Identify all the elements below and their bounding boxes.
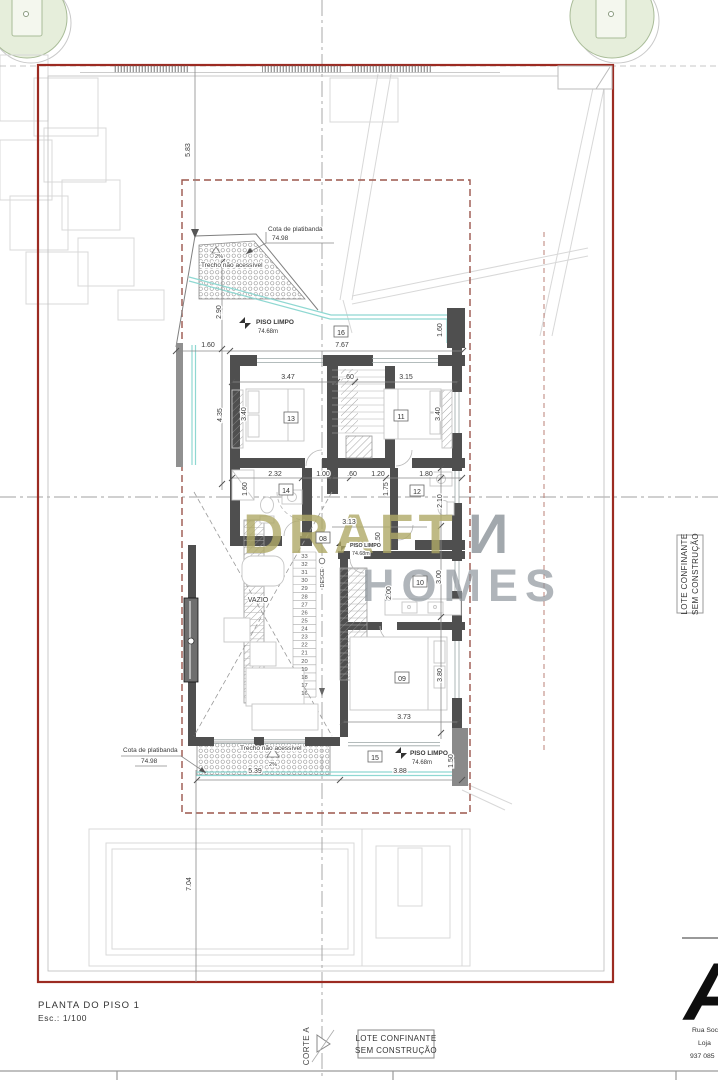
room-tag-number: 16 — [337, 330, 345, 337]
stair-tread-number: 31 — [301, 570, 307, 576]
annotation-label: Cota de platibanda — [123, 747, 178, 754]
top-wall-hatch-strips — [80, 66, 612, 90]
stair-tread-number: 29 — [301, 586, 307, 592]
dimension-label: 1.60 — [201, 342, 215, 349]
room-tag-number: 11 — [397, 414, 404, 421]
stair-tread-number: 24 — [301, 627, 308, 633]
annotation-label: 2% — [269, 762, 277, 768]
annotation-label: 74.68m — [412, 760, 432, 766]
room-tag-number: 15 — [371, 755, 379, 762]
dimension-label: 7.04 — [186, 877, 193, 891]
dimension-label: 5.83 — [185, 143, 192, 157]
annotation-label: VAZIO — [248, 597, 269, 604]
stair-tread-number: 30 — [301, 578, 307, 584]
dimension-label: 3.88 — [393, 768, 407, 775]
stair-tread-number: 27 — [301, 602, 307, 608]
section-label: CORTE A — [302, 1027, 311, 1066]
adjacent-lot-right-line1: LOTE CONFINANTE — [680, 533, 689, 614]
stair-tread-number: 33 — [301, 554, 307, 560]
annotation-label: PISO LIMPO — [410, 750, 448, 757]
stair-direction-arrow — [319, 688, 325, 696]
logo-address-line1: Rua Soci — [692, 1027, 718, 1034]
annotation-label: 74.68m — [352, 551, 370, 557]
plan-title: PLANTA DO PISO 1 — [38, 1000, 140, 1011]
annotation-label: 74.68m — [258, 329, 278, 335]
room-tag-number: 10 — [416, 580, 424, 587]
annotation-label: 2% — [215, 254, 223, 260]
logo-address-line3: 937 085 — [690, 1053, 715, 1060]
adjacent-lot-note-right: LOTE CONFINANTE SEM CONSTRUÇÃO — [677, 533, 703, 615]
dimension-label: 1.00 — [316, 471, 330, 478]
watermark-word-in: И — [468, 502, 508, 565]
adjacent-lot-right-line2: SEM CONSTRUÇÃO — [691, 533, 700, 615]
dimension-label: .60 — [347, 471, 357, 478]
dimension-label: 2.32 — [268, 471, 282, 478]
tree-icon — [570, 0, 659, 63]
dimension-label: 3.73 — [397, 714, 411, 721]
room-tag-number: 12 — [413, 489, 421, 496]
dimension-label: 1.50 — [448, 754, 455, 768]
dimension-label: .60 — [344, 374, 354, 381]
annotation-label: Trecho não acessível — [240, 745, 302, 752]
plan-scale: Esc.: 1/100 — [38, 1013, 87, 1023]
floor-plan-svg: DRAFT И HOMES 5.832.901.607.671.603.47.6… — [0, 0, 718, 1080]
annotation-label: DESCE — [320, 568, 326, 587]
dimension-label: 1.60 — [242, 482, 249, 496]
tree-icon — [0, 0, 71, 63]
annotation-label: Cota de platibanda — [268, 226, 323, 233]
adjacent-lot-bottom-line2: SEM CONSTRUÇÃO — [355, 1046, 437, 1055]
stair-tread-number: 19 — [301, 667, 307, 673]
dimension-label: 3.40 — [435, 407, 442, 421]
room-tag-number: 13 — [287, 416, 295, 423]
dimension-label: 4.35 — [217, 408, 224, 422]
stair-tread-number: 22 — [301, 643, 307, 649]
sliding-door — [184, 598, 198, 682]
stair-tread-number: 23 — [301, 635, 307, 641]
dimension-label: 1.60 — [437, 323, 444, 337]
room-tag-number: 09 — [398, 676, 406, 683]
pool-outline — [89, 829, 470, 966]
logo-address-line2: Loja — [698, 1040, 711, 1047]
adjacent-lot-bottom-line1: LOTE CONFINANTE — [355, 1034, 436, 1043]
dimension-label: 3.00 — [436, 570, 443, 584]
dimension-label: 3.80 — [437, 668, 444, 682]
stair-tread-number: 17 — [301, 683, 307, 689]
watermark: DRAFT И HOMES — [243, 502, 562, 611]
stair-tread-number: 16 — [301, 691, 307, 697]
stair-tread-number: 28 — [301, 594, 307, 600]
stair-tread-number: 18 — [301, 675, 307, 681]
watermark-word-homes: HOMES — [362, 560, 562, 611]
annotation-label: PISO LIMPO — [256, 319, 294, 326]
dimension-label: 5.39 — [248, 768, 262, 775]
dimension-label: 1.80 — [419, 471, 433, 478]
dimension-label: 2.10 — [437, 494, 444, 508]
dimension-label: 1.20 — [371, 471, 385, 478]
watermark-word-draft: DRAFT — [243, 502, 458, 565]
stair-tread-number: 25 — [301, 618, 307, 624]
architect-logo-block: A Rua Soci Loja 937 085 — [682, 938, 718, 1060]
logo-letter: A — [682, 947, 718, 1038]
stair-tread-number: 20 — [301, 659, 307, 665]
section-marker: CORTE A — [302, 1027, 334, 1066]
annotation-label: Trecho não acessível — [201, 262, 263, 269]
adjacent-lot-note-bottom: LOTE CONFINANTE SEM CONSTRUÇÃO — [355, 1030, 437, 1058]
dimension-label: 3.15 — [399, 374, 413, 381]
annotation-label: 74.98 — [141, 758, 158, 765]
dimension-label: 3.40 — [241, 407, 248, 421]
dimension-label: 1.75 — [383, 482, 390, 496]
sheet-frame-bottom — [0, 1071, 718, 1080]
annotation-label: 74.98 — [272, 235, 289, 242]
section-triangle-icon — [317, 1035, 330, 1052]
floor-plan-sheet: DRAFT И HOMES 5.832.901.607.671.603.47.6… — [0, 0, 718, 1080]
title-block: PLANTA DO PISO 1 Esc.: 1/100 — [38, 1000, 140, 1023]
dimension-label: 2.00 — [386, 586, 393, 600]
stair-tread-number: 26 — [301, 610, 307, 616]
room-tag-number: 14 — [282, 488, 290, 495]
annotation-label: PISO LIMPO — [350, 543, 381, 549]
room-tag-number: 08 — [319, 536, 327, 543]
dimension-label: 7.67 — [335, 342, 349, 349]
stair-tread-number: 32 — [301, 562, 307, 568]
dimension-label: 3.13 — [342, 519, 356, 526]
neighbor-buildings-outline — [0, 55, 164, 320]
stair-tread-number: 21 — [301, 651, 307, 657]
dimension-label: 2.90 — [216, 305, 223, 319]
dimension-label: 3.47 — [281, 374, 295, 381]
